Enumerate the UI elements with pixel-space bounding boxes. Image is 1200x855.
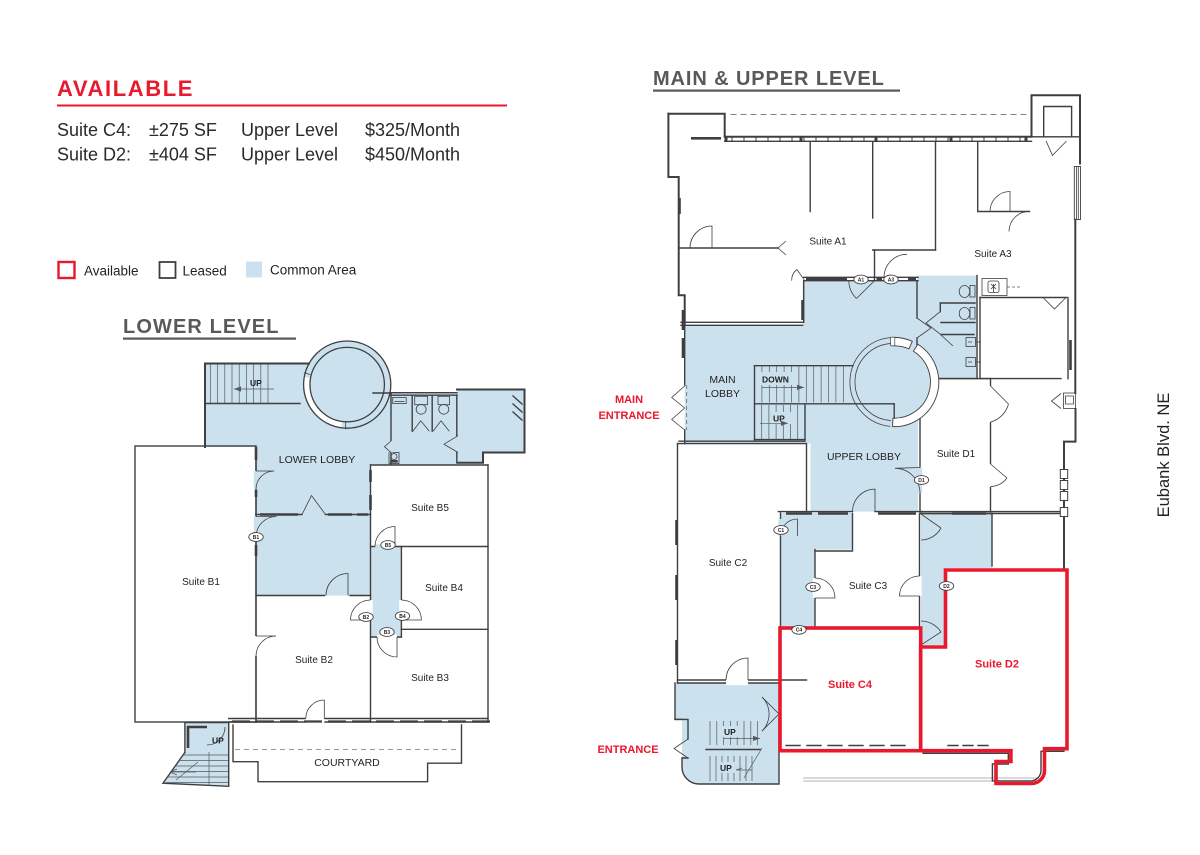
svg-text:ENTRANCE: ENTRANCE [598, 410, 659, 422]
svg-text:Common Area: Common Area [270, 263, 357, 278]
svg-text:Suite C4: Suite C4 [828, 679, 873, 691]
svg-text:Suite B1: Suite B1 [182, 577, 220, 588]
svg-text:±275 SF: ±275 SF [149, 120, 217, 140]
svg-text:Suite B4: Suite B4 [425, 583, 463, 594]
svg-text:B3: B3 [384, 630, 391, 636]
svg-text:Available: Available [84, 264, 139, 279]
svg-text:B2: B2 [363, 615, 370, 621]
svg-text:$325/Month: $325/Month [365, 120, 460, 140]
svg-text:C4: C4 [796, 628, 803, 634]
svg-text:Eubank Blvd. NE: Eubank Blvd. NE [1155, 393, 1173, 518]
svg-text:±404 SF: ±404 SF [149, 145, 217, 165]
svg-text:UP: UP [724, 727, 736, 737]
svg-text:Suite A1: Suite A1 [809, 237, 847, 248]
svg-text:Suite D2: Suite D2 [975, 659, 1019, 671]
svg-text:Suite B3: Suite B3 [411, 673, 449, 684]
svg-text:UP: UP [720, 763, 732, 773]
svg-text:UP: UP [250, 378, 262, 388]
svg-text:A3: A3 [888, 277, 895, 283]
svg-text:ENTRANCE: ENTRANCE [597, 744, 658, 756]
svg-text:Leased: Leased [183, 264, 227, 279]
svg-text:MAIN: MAIN [615, 394, 643, 406]
svg-text:DOWN: DOWN [762, 375, 789, 385]
svg-text:Suite D1: Suite D1 [937, 449, 976, 460]
svg-text:UPPER LOBBY: UPPER LOBBY [827, 451, 901, 463]
svg-text:UP: UP [212, 736, 224, 746]
svg-text:B4: B4 [399, 614, 406, 620]
svg-text:C1: C1 [778, 528, 785, 534]
svg-text:D2: D2 [943, 584, 950, 590]
svg-text:Suite C3: Suite C3 [849, 581, 888, 592]
svg-text:Upper Level: Upper Level [241, 120, 338, 140]
svg-text:Suite D2:: Suite D2: [57, 145, 131, 165]
svg-text:COURTYARD: COURTYARD [314, 757, 380, 769]
svg-text:MAIN & UPPER LEVEL: MAIN & UPPER LEVEL [653, 68, 885, 90]
svg-text:A1: A1 [858, 277, 865, 283]
svg-text:Suite C2: Suite C2 [709, 558, 748, 569]
svg-text:Suite C4:: Suite C4: [57, 120, 131, 140]
svg-text:Upper Level: Upper Level [241, 145, 338, 165]
svg-text:Suite B2: Suite B2 [295, 655, 333, 666]
svg-text:Suite B5: Suite B5 [411, 503, 449, 514]
svg-text:LOWER LEVEL: LOWER LEVEL [123, 316, 280, 338]
svg-text:LOBBY: LOBBY [705, 388, 740, 400]
svg-text:MAIN: MAIN [709, 374, 735, 386]
svg-text:D1: D1 [918, 478, 925, 484]
svg-text:Suite A3: Suite A3 [974, 249, 1012, 260]
svg-text:$450/Month: $450/Month [365, 145, 460, 165]
svg-text:AVAILABLE: AVAILABLE [57, 76, 194, 101]
svg-text:LOWER LOBBY: LOWER LOBBY [279, 454, 355, 466]
svg-text:B5: B5 [385, 543, 392, 549]
svg-text:B1: B1 [253, 535, 260, 541]
svg-text:C3: C3 [810, 585, 817, 591]
